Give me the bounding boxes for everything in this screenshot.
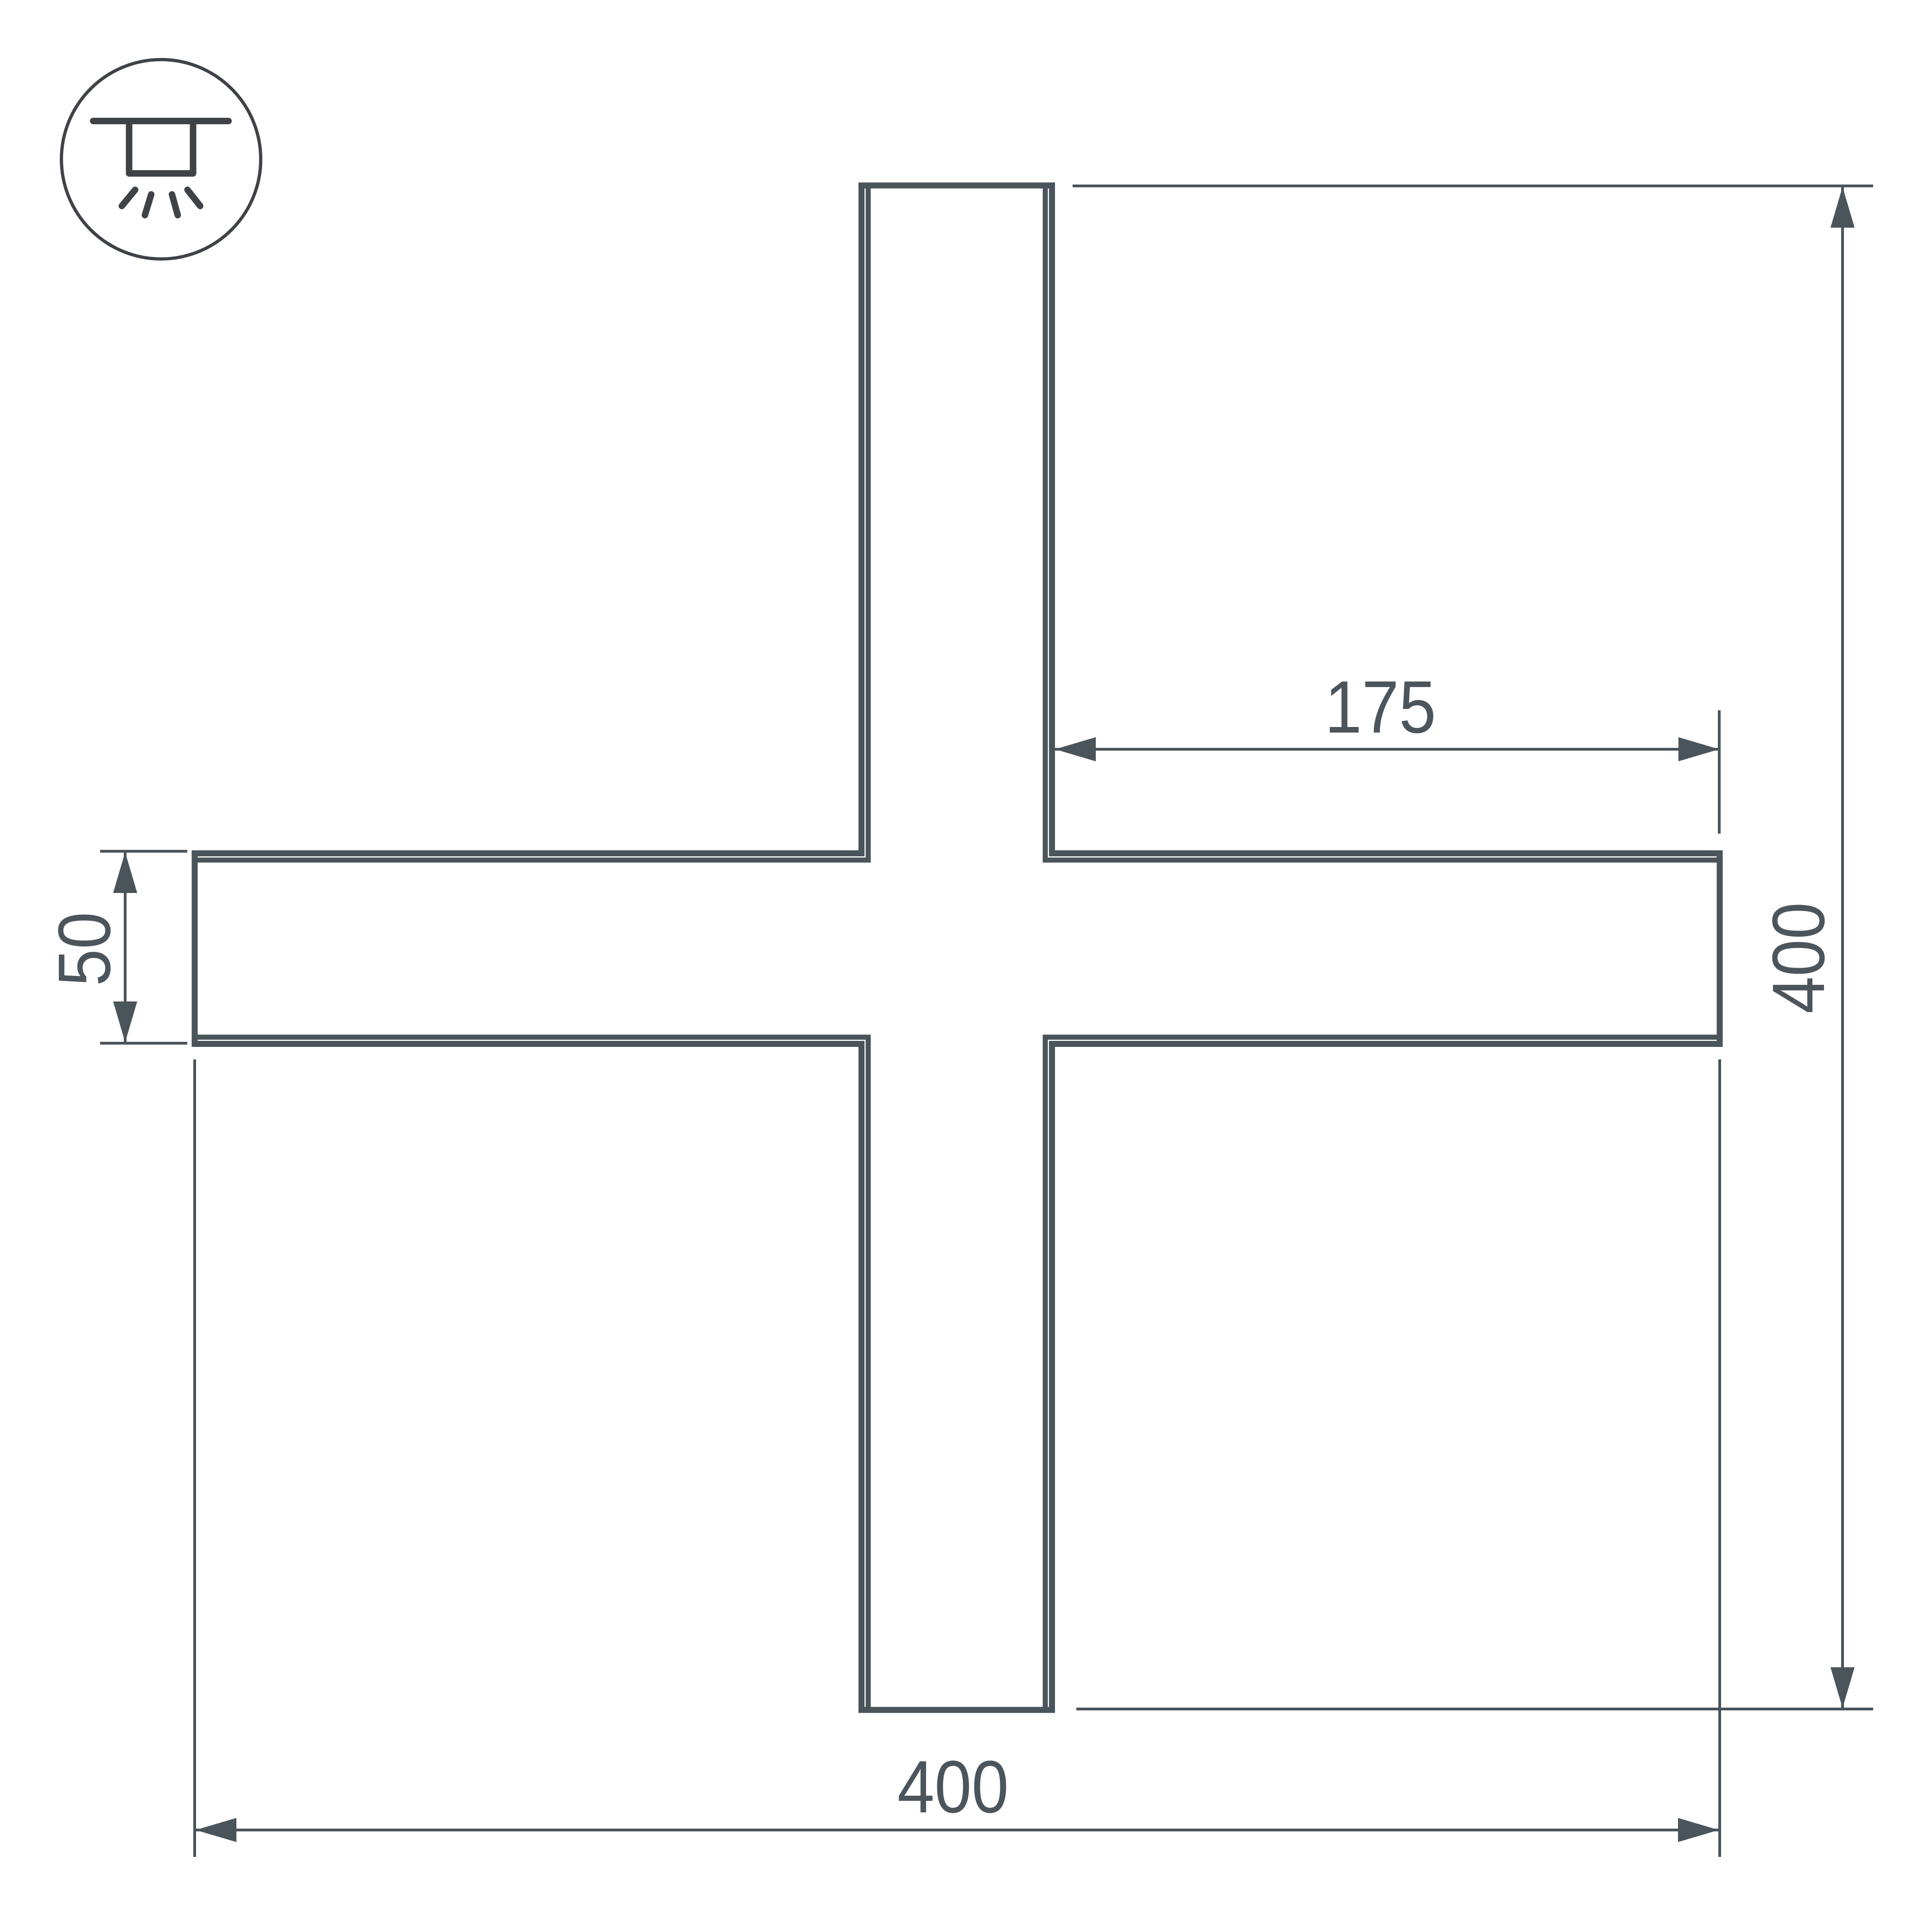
svg-text:50: 50 <box>43 912 126 986</box>
svg-text:400: 400 <box>897 1746 1009 1829</box>
svg-text:175: 175 <box>1325 666 1436 749</box>
svg-text:400: 400 <box>1757 902 1840 1014</box>
